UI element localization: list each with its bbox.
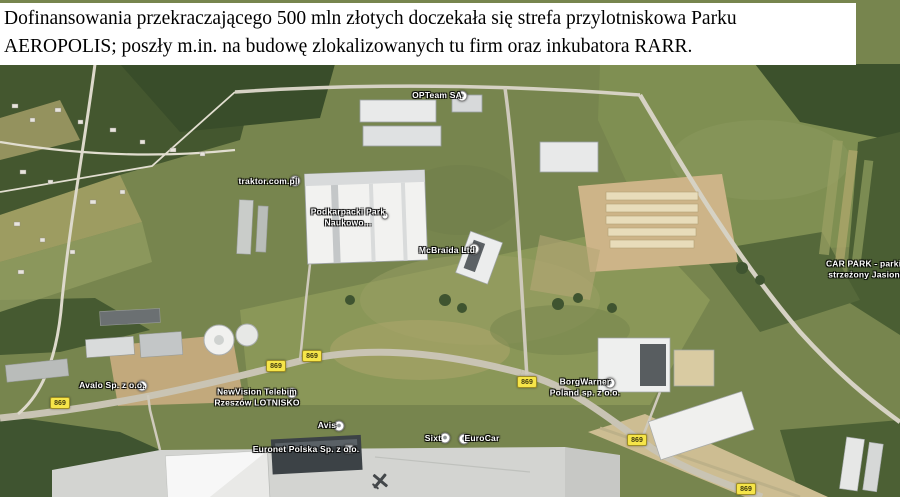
road-badge-text: 869 [740, 486, 752, 493]
map-label-eurocar[interactable]: EuroCar [465, 433, 500, 444]
map-label-opteam-sa[interactable]: OPTeam SA [412, 90, 462, 101]
road-badge-869[interactable]: 869 [266, 360, 286, 372]
road-badge-text: 869 [631, 437, 643, 444]
map-label-avalo[interactable]: Avalo Sp. z o.o. [79, 380, 145, 391]
road-badge-text: 869 [270, 363, 282, 370]
map-label-traktor[interactable]: traktor.com.pl [238, 176, 297, 187]
map-screenshot: OPTeam SA traktor.com.pl Podkarpacki Par… [0, 0, 900, 497]
map-label-avis[interactable]: Avis [318, 420, 336, 431]
caption-overlay: Dofinansowania przekraczającego 500 mln … [0, 3, 856, 65]
map-label-text: Poland sp. z o.o. [550, 387, 620, 398]
map-label-car-park[interactable]: CAR PARK - parking strzeżony Jasionka [826, 259, 900, 280]
map-label-text: Sixt [425, 433, 441, 444]
map-label-sixt[interactable]: Sixt [425, 433, 441, 444]
map-label-text: Naukowo... [311, 217, 386, 228]
road-badge-869[interactable]: 869 [517, 376, 537, 388]
map-label-text: Podkarpacki Park [311, 207, 386, 218]
road-badge-869[interactable]: 869 [627, 434, 647, 446]
map-label-text: OPTeam SA [412, 90, 462, 101]
caption-line-1: Dofinansowania przekraczającego 500 mln … [4, 5, 852, 33]
map-label-text: Euronet Polska Sp. z o.o. [253, 444, 360, 455]
map-label-text: strzeżony Jasionka [826, 269, 900, 280]
road-badge-text: 869 [54, 400, 66, 407]
map-label-text: traktor.com.pl [238, 176, 297, 187]
road-badge-text: 869 [306, 353, 318, 360]
map-label-text: BorgWarner [550, 377, 620, 388]
map-label-mcbraida[interactable]: McBraida Ltd [419, 245, 475, 256]
map-label-text: EuroCar [465, 433, 500, 444]
caption-line-2: AEROPOLIS; poszły m.in. na budowę zlokal… [4, 33, 852, 61]
map-label-borgwarner[interactable]: BorgWarner Poland sp. z o.o. [550, 377, 620, 398]
map-label-text: NewVision Telebim [214, 387, 299, 398]
road-badge-869[interactable]: 869 [50, 397, 70, 409]
map-label-euronet[interactable]: Euronet Polska Sp. z o.o. [253, 444, 360, 455]
map-label-podkarpacki-park[interactable]: Podkarpacki Park Naukowo... [311, 207, 386, 228]
map-label-text: CAR PARK - parking [826, 259, 900, 270]
map-label-text: McBraida Ltd [419, 245, 475, 256]
road-badge-text: 869 [521, 379, 533, 386]
road-badge-869[interactable]: 869 [302, 350, 322, 362]
map-label-text: Avis [318, 420, 336, 431]
map-label-text: Avalo Sp. z o.o. [79, 380, 145, 391]
road-badge-869[interactable]: 869 [736, 483, 756, 495]
map-label-newvision-lotnisko[interactable]: NewVision Telebim Rzeszów LOTNISKO [214, 387, 299, 408]
map-label-text: Rzeszów LOTNISKO [214, 397, 299, 408]
